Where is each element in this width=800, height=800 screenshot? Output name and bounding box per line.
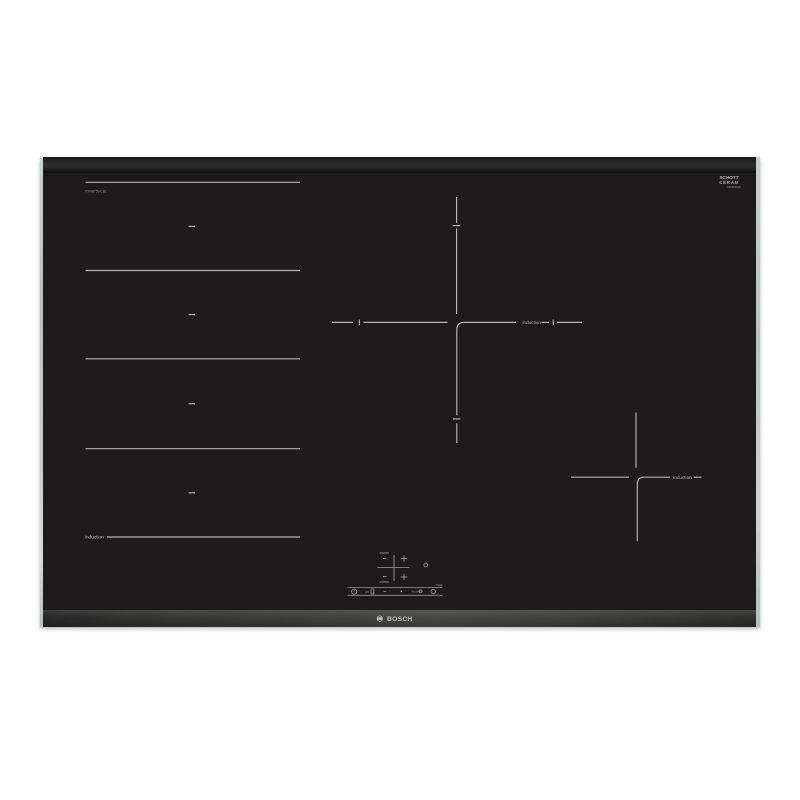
svg-text:boost: boost (412, 590, 420, 594)
svg-text:CERAN: CERAN (719, 180, 738, 185)
svg-text:induction: induction (85, 535, 104, 540)
svg-text:on: on (365, 590, 369, 594)
svg-text:PXV875DC1E: PXV875DC1E (86, 190, 108, 194)
svg-text:induction: induction (523, 320, 542, 325)
svg-text:max: max (436, 583, 443, 587)
svg-text:induction: induction (673, 475, 692, 480)
svg-text:MIRRORED: MIRRORED (727, 186, 740, 189)
svg-text:BOSCH: BOSCH (387, 616, 413, 623)
